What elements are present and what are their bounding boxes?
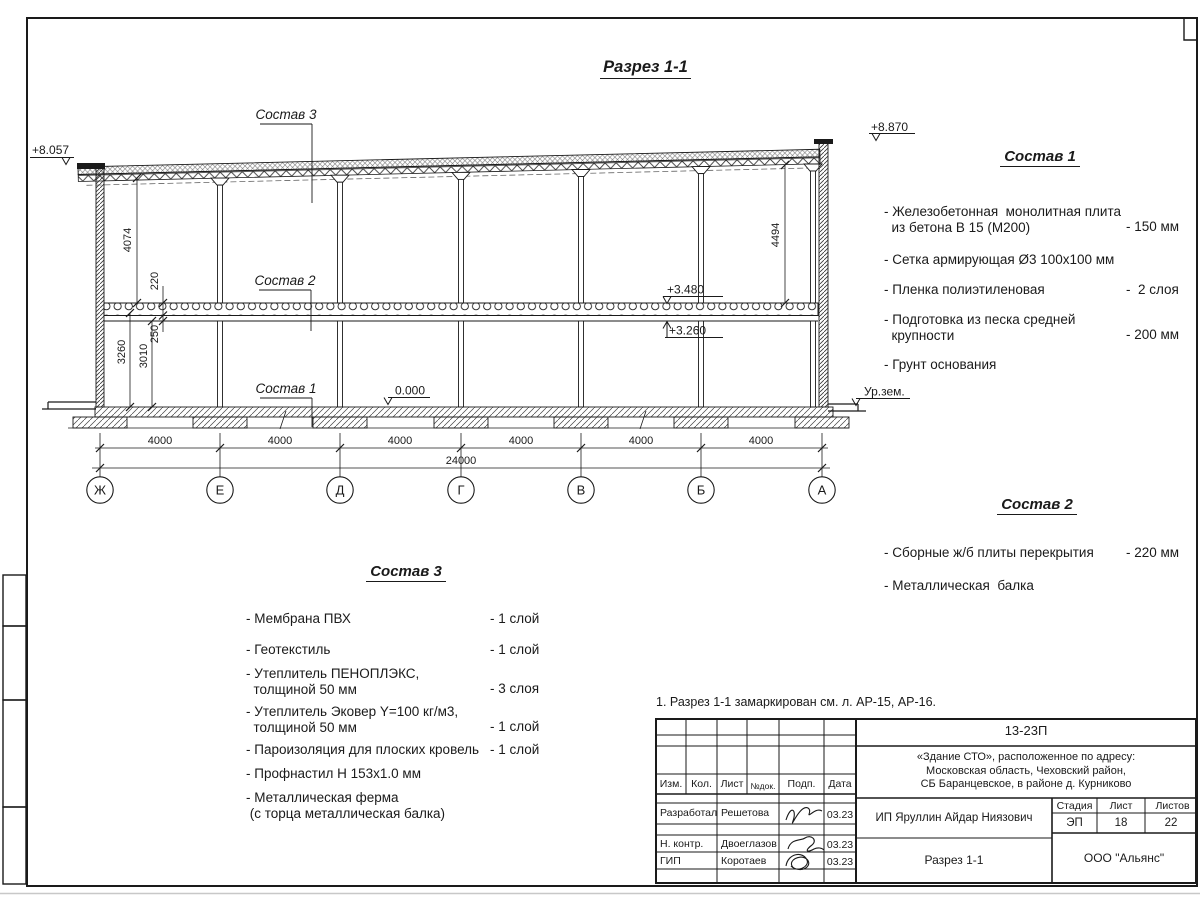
list-item: - Пароизоляция для плоских кровель - 1 с… [246,742,546,758]
list-item: - Утеплитель Эковер Y=100 кг/м3, толщино… [246,704,546,735]
elev-zero-label: 0.000 [395,384,425,398]
sheet-title: Разрез 1-1 [856,853,1052,867]
dim-3260: 3260 [116,340,128,364]
list-item: - Сетка армирующая Ø3 100х100 мм [884,252,1190,268]
floor-slab [104,303,818,321]
list-item: - Профнастил Н 153х1.0 мм [246,766,546,782]
elev-right-label: +8.870 [871,120,908,134]
dim-bay-4: 4000 [509,435,533,447]
col-header-kol: Кол. [686,778,717,790]
row-role: Н. контр. [660,838,717,850]
project-description: «Здание СТО», расположенное по адресу: М… [856,751,1196,792]
list-item: - Утеплитель ПЕНОПЛЭКС, толщиной 50 мм -… [246,666,546,697]
list-item: - Геотекстиль - 1 слой [246,642,546,658]
list-item: - Сборные ж/б плиты перекрытия - 220 мм [884,545,1190,561]
list-item: - Мембрана ПВХ - 1 слой [246,611,546,627]
axis-d: Д [336,483,345,498]
list-item: - Подготовка из песка средней крупности … [884,312,1190,343]
dim-bay-2: 4000 [268,435,292,447]
dim-250: 250 [149,325,161,343]
page-title: Разрез 1-1 [598,58,693,77]
sostav2-title: Состав 2 [977,496,1097,513]
dim-4494: 4494 [770,223,782,247]
callout-sostav2: Состав 2 [255,273,316,288]
row-date: 03.23 [825,856,855,868]
axis-a: А [818,483,827,498]
list-item: - Грунт основания [884,357,1190,373]
doc-number: 13-23П [856,723,1196,738]
row-role: ГИП [660,855,717,867]
dim-bay-1: 4000 [148,435,172,447]
row-date: 03.23 [825,809,855,821]
row-name: Двоеглазов [721,838,778,850]
listov-value: 22 [1145,817,1197,829]
list-item: - Железобетонная монолитная плита из бет… [884,204,1190,235]
list-item: - Металлическая балка [884,578,1190,594]
ground-slab [42,402,866,429]
elev-slab-bot-label: +3.260 [669,324,706,338]
axis-v: В [577,483,586,498]
stadia-value: ЭП [1052,817,1097,829]
col-header-ndok: №док. [747,781,779,791]
row-date: 03.23 [825,839,855,851]
stadia-header: Стадия [1052,800,1097,812]
building-section: 4074 220 250 3010 3260 4494 4000 4 [30,107,915,503]
dim-bay-3: 4000 [388,435,412,447]
dim-220: 220 [149,272,161,290]
col-header-izm: Изм. [656,778,686,790]
dim-3010: 3010 [138,344,150,368]
list-value: 18 [1097,817,1145,829]
axis-b: Б [697,483,706,498]
dim-total: 24000 [446,455,477,467]
company-name: ООО "Альянс" [1052,851,1196,865]
dim-bay-6: 4000 [749,435,773,447]
sostav1-title: Состав 1 [980,148,1100,165]
callout-sostav1: Состав 1 [256,381,317,396]
dim-bay-5: 4000 [629,435,653,447]
col-header-data: Дата [824,778,856,790]
signatures [786,808,824,870]
sostav3-title: Состав 3 [346,563,466,580]
client-name: ИП Яруллин Айдар Ниязович [856,812,1052,824]
listov-header: Листов [1145,800,1200,812]
row-role: Разработал [660,807,717,819]
col-header-podp: Подп. [779,778,824,790]
axis-zh: Ж [94,483,106,498]
row-name: Коротаев [721,855,778,867]
dim-4074: 4074 [122,228,134,252]
axis-g: Г [457,483,464,498]
callout-sostav3: Состав 3 [256,107,317,122]
col-header-list: Лист [717,778,747,790]
row-name: Решетова [721,807,778,819]
elev-slab-top-label: +3.480 [667,283,704,297]
axis-e: Е [216,483,225,498]
list-item: - Пленка полиэтиленовая - 2 слоя [884,282,1190,298]
margin-stamp-boxes [3,575,26,884]
list-header: Лист [1097,800,1145,812]
sheet-note: 1. Разрез 1-1 замаркирован см. л. АР-15,… [656,695,986,709]
elev-left-label: +8.057 [32,143,69,157]
list-item: - Металлическая ферма (с торца металличе… [246,790,546,821]
ground-level-label: Ур.зем. [864,385,905,399]
drawing-sheet: 4074 220 250 3010 3260 4494 4000 4 [0,0,1200,900]
